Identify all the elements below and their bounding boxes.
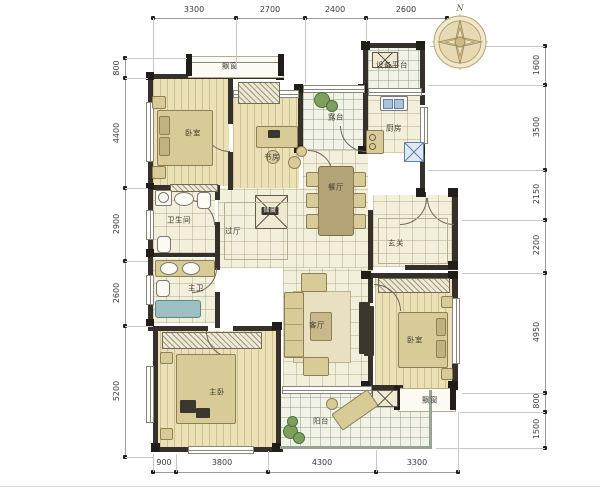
wall [276, 326, 281, 452]
ext-line [125, 261, 148, 262]
floor-plan-canvas: 飘窗 卧室 书房 露台 设备平台 厨房 餐厅 玄关 卫生间 过厅 储藏 主卫 主… [0, 0, 600, 489]
room-label-study: 书房 [264, 153, 280, 161]
column [278, 54, 284, 76]
basin [182, 262, 200, 275]
footer-rule [0, 486, 600, 487]
dim-right-5: 800 [533, 393, 541, 408]
dim-line-top [153, 18, 447, 19]
dim-bottom-1: 3800 [212, 459, 232, 467]
ext-line [460, 412, 545, 413]
compass-rose [432, 14, 488, 70]
ext-line [125, 457, 153, 458]
dim-top-2: 2400 [325, 6, 345, 14]
window [146, 275, 154, 305]
column [146, 249, 154, 257]
dim-left-1: 4400 [113, 123, 121, 143]
dim-line-bottom [153, 472, 458, 473]
pillow [159, 116, 170, 135]
sink-basin [394, 99, 404, 109]
basin [160, 262, 178, 275]
column [450, 386, 456, 410]
quilt [196, 408, 210, 418]
ext-line [125, 326, 153, 327]
ext-line [376, 450, 377, 472]
ext-line [153, 454, 154, 472]
nightstand [160, 428, 173, 440]
room-label-bedroom-top: 卧室 [185, 129, 201, 137]
burner [369, 143, 376, 150]
room-label-hallway: 过厅 [225, 227, 241, 235]
pouf [296, 146, 307, 157]
stove [366, 130, 384, 154]
toilet [157, 236, 171, 253]
nightstand [160, 352, 173, 364]
room-label-kitchen: 厨房 [386, 124, 402, 132]
column [361, 271, 371, 279]
dim-left-0: 800 [113, 60, 121, 75]
dim-top-3: 2600 [396, 6, 416, 14]
plant [287, 416, 298, 427]
dim-bottom-3: 3300 [407, 459, 427, 467]
armchair [303, 357, 329, 376]
column [448, 188, 458, 197]
room-label-master-bath: 主卫 [188, 284, 204, 292]
dim-line-right [545, 46, 546, 448]
balcony-rail [280, 446, 432, 449]
ext-line [436, 448, 545, 449]
wall [368, 210, 373, 270]
room-label-terrace: 露台 [328, 113, 344, 121]
dining-table [318, 166, 354, 236]
ext-line [366, 18, 367, 42]
dim-right-1: 3500 [533, 117, 541, 137]
room-label-dining: 餐厅 [328, 183, 344, 191]
dining-chair [306, 172, 319, 187]
dim-right-0: 1600 [533, 55, 541, 75]
north-label: N [457, 4, 464, 13]
window [146, 366, 154, 423]
room-label-bedroom-right: 卧室 [407, 336, 423, 344]
column [448, 261, 458, 269]
dim-left-3: 2600 [113, 283, 121, 303]
column [416, 188, 425, 197]
ext-line [125, 188, 148, 189]
bathtub [155, 300, 201, 318]
flue-shaft [404, 142, 424, 162]
ext-line [428, 170, 545, 171]
dresser [364, 306, 374, 356]
room-label-living: 客厅 [309, 321, 325, 329]
wall [148, 185, 153, 330]
pillow [436, 318, 446, 336]
pillow [159, 137, 170, 156]
basin [174, 192, 194, 206]
room-label-foyer: 玄关 [388, 239, 404, 247]
compass-graphic [432, 14, 488, 70]
window [146, 210, 154, 240]
wall [148, 253, 218, 257]
dining-chair [353, 172, 366, 187]
pillow [436, 340, 446, 358]
window [146, 102, 154, 162]
dim-right-6: 1500 [533, 419, 541, 439]
dim-top-1: 2700 [260, 6, 280, 14]
room-label-bathroom: 卫生间 [167, 216, 191, 224]
dining-chair [306, 214, 319, 229]
window [420, 107, 428, 144]
column [416, 41, 425, 50]
window [188, 446, 254, 454]
wall [215, 222, 220, 258]
nightstand [441, 368, 453, 380]
nightstand [441, 296, 453, 308]
quilt [180, 400, 196, 413]
ext-line [176, 454, 177, 472]
toilet [197, 192, 211, 209]
ext-line [153, 18, 154, 72]
plant [293, 432, 305, 444]
dim-right-3: 2200 [533, 235, 541, 255]
washer-drum [158, 192, 169, 203]
wall [215, 292, 220, 328]
room-label-balcony: 阳台 [313, 417, 329, 425]
dining-chair [306, 193, 319, 208]
dim-top-0: 3300 [184, 6, 204, 14]
ext-line [125, 78, 148, 79]
dining-chair [353, 214, 366, 229]
room-label-master-bedroom: 主卧 [209, 388, 225, 396]
dim-bottom-2: 4300 [312, 459, 332, 467]
window-hatch [170, 184, 218, 192]
ext-line [458, 412, 459, 472]
wardrobe-hatch [238, 82, 280, 104]
dining-chair [353, 193, 366, 208]
dim-right-4: 4950 [533, 322, 541, 342]
ext-line [428, 85, 545, 86]
window [368, 88, 422, 96]
room-label-storage: 储藏 [261, 207, 278, 215]
ext-line [462, 220, 545, 221]
toilet [156, 280, 170, 297]
dim-line-left [125, 58, 126, 457]
wall [228, 79, 233, 124]
dim-left-2: 2900 [113, 214, 121, 234]
burner [369, 134, 376, 141]
column [272, 322, 282, 330]
side-table [326, 398, 338, 410]
nightstand [152, 166, 166, 179]
wall [228, 152, 233, 190]
pouf [288, 156, 301, 169]
ext-line [236, 18, 237, 68]
wall [420, 43, 425, 93]
window [452, 298, 460, 364]
nightstand [152, 96, 166, 109]
column [361, 41, 370, 50]
room-label-bay-bottom: 飘窗 [422, 396, 438, 404]
window [303, 85, 365, 93]
dim-right-2: 2150 [533, 184, 541, 204]
dim-left-4: 5200 [113, 381, 121, 401]
sink-basin [383, 99, 393, 109]
room-label-equipment: 设备平台 [376, 61, 408, 69]
wall [420, 95, 425, 105]
ext-line [462, 273, 545, 274]
dim-bottom-0: 900 [156, 459, 171, 467]
plant [326, 100, 338, 112]
column [151, 443, 160, 452]
ext-line [305, 18, 306, 84]
balcony-sliding-door [282, 386, 372, 394]
armchair [301, 273, 327, 292]
ext-line [268, 451, 269, 472]
computer [268, 130, 280, 138]
sofa [284, 292, 304, 358]
ext-line [125, 58, 187, 59]
